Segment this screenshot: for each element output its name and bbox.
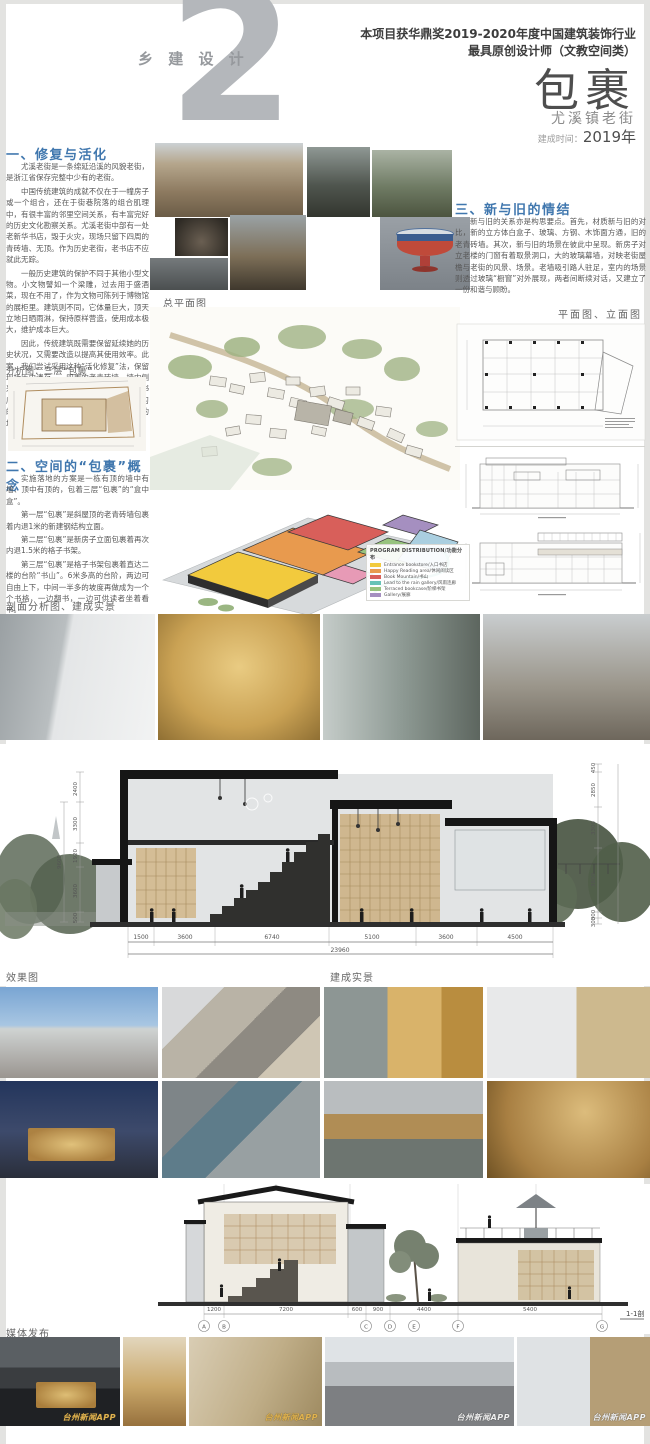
svg-text:500: 500 [73, 912, 79, 923]
chapter-number: 2 [168, 0, 291, 148]
section2-para1: 实施落地的方案是一栋有顶的墙中有墙、顶中有顶的，包着三层“包裹”的“盒中盒”。 [6, 473, 149, 507]
section3-para1: 新与旧的关系亦是构思要点。首先，材质新与旧的对比，新的立方体白盒子、玻璃、方钢、… [455, 216, 646, 296]
svg-text:3300: 3300 [591, 821, 597, 835]
photo-roof-tiles [150, 258, 228, 290]
photo-render-night [0, 1081, 158, 1178]
svg-text:3600: 3600 [591, 873, 597, 887]
svg-text:900: 900 [373, 1307, 384, 1313]
program-legend: PROGRAM DISTRIBUTION/功能分布 Entrance books… [366, 544, 470, 601]
svg-text:600: 600 [352, 1307, 363, 1313]
photo-built-courtyard-wall [324, 987, 483, 1078]
photo-old-alley [483, 614, 650, 740]
svg-text:D: D [388, 1325, 392, 1331]
photo-render-day [0, 987, 158, 1078]
svg-text:6740: 6740 [264, 934, 279, 941]
svg-text:1500: 1500 [133, 934, 148, 941]
photo-built-wood-canopy [324, 1081, 483, 1178]
photo-render-collage [162, 987, 320, 1078]
svg-text:4400: 4400 [417, 1307, 431, 1313]
main-section-drawing: 1500 3600 6740 5100 3600 4500 23960 2400… [0, 744, 650, 986]
photo-stone-archway [175, 218, 228, 256]
floor-plan-drawing [455, 322, 647, 442]
poster-stage: 2 乡 建 设 计 本项目获华鼎奖2019-2020年度中国建筑装饰行业 最具原… [0, 0, 650, 1444]
bowl-base [412, 266, 438, 272]
svg-text:F: F [456, 1325, 459, 1331]
photo-media-shelf-wall [123, 1337, 186, 1426]
watermark: 台州新闻APP [63, 1412, 116, 1423]
legend-chip [370, 569, 381, 573]
legend-title: PROGRAM DISTRIBUTION/功能分布 [370, 547, 466, 561]
section1-para1: 尤溪老街是一条绵延沿溪的风貌老街，是浙江省保存完整中少有的老街。 [6, 161, 149, 184]
photo-old-street-buildings [155, 143, 303, 217]
project-subtitle: 尤溪镇老街 [551, 108, 636, 128]
legend-chip [370, 575, 381, 579]
svg-text:A: A [202, 1325, 206, 1331]
completion-date: 建成时间：2019年 [538, 126, 636, 147]
svg-text:E: E [412, 1325, 416, 1331]
storefront-glow [36, 1382, 96, 1409]
legend-chip [370, 587, 381, 591]
svg-text:C: C [364, 1325, 368, 1331]
legend-chip [370, 563, 381, 567]
photo-glass-interior [323, 614, 480, 740]
svg-text:5400: 5400 [523, 1307, 537, 1313]
svg-text:3600: 3600 [73, 884, 79, 898]
photo-golden-bookshelf-hall [158, 614, 320, 740]
photo-media-book-steps: 台州新闻APP [189, 1337, 322, 1426]
legend-label: Gallery/展廊 [384, 592, 411, 598]
svg-text:3600: 3600 [438, 934, 453, 941]
site-plan-drawing [150, 307, 460, 490]
elevation-drawing-1 [458, 450, 646, 520]
svg-text:450: 450 [591, 762, 597, 773]
secondary-section-drawing: 1200 7200 600 900 4400 5400 A B C D E F … [128, 1184, 650, 1334]
svg-text:4500: 4500 [507, 934, 522, 941]
series-title: 乡 建 设 计 [138, 48, 249, 69]
photo-media-night-exterior: 台州新闻APP [0, 1337, 120, 1426]
svg-text:7200: 7200 [279, 1307, 293, 1313]
section1-para3: 一般历史建筑的保护不同于其他小型文物。小文物譬如一个梁雕，过去用于盛酒菜，现在不… [6, 268, 149, 336]
watermark: 台州新闻APP [593, 1412, 646, 1423]
divider-line [455, 446, 645, 447]
plans-caption: 平面图、立面图 [558, 306, 642, 321]
photo-built-corridor-shelves [487, 987, 650, 1078]
bowl-body [397, 234, 453, 256]
porcelain-bowl-illustration [395, 228, 455, 280]
section1-para2: 中国传统建筑的成就不仅在于一幢房子或一个组合，还在于街巷院落的组合肌理中，有很丰… [6, 186, 149, 266]
section-label: 1-1剖 [626, 1309, 644, 1318]
photo-media-window-reading: 台州新闻APP [517, 1337, 650, 1426]
svg-text:2400: 2400 [73, 782, 79, 796]
photo-stone-gallery [0, 614, 155, 740]
analysis-diagram-caption: 分析图：三层“包裹” [6, 364, 92, 377]
photo-old-balcony [307, 147, 370, 217]
render-caption: 效果图 [6, 969, 39, 984]
svg-text:1920: 1920 [73, 849, 79, 863]
completion-value: 2019年 [583, 128, 636, 146]
section2-para3: 第二层“包裹”是新房子立面包裹着再次内退1.5米的格子书架。 [6, 534, 149, 557]
analysis-diagram [8, 377, 146, 451]
svg-text:B: B [222, 1325, 226, 1331]
legend-row: Gallery/展廊 [370, 592, 466, 598]
window-glow [28, 1128, 115, 1161]
svg-text:300: 300 [591, 916, 597, 927]
svg-text:1200: 1200 [207, 1307, 221, 1313]
section3-body: 新与旧的关系亦是构思要点。首先，材质新与旧的对比，新的立方体白盒子、玻璃、方钢、… [455, 216, 646, 298]
elevation-drawing-2 [460, 523, 646, 597]
left-dimension-total: 9600 [57, 855, 63, 869]
legend-chip [370, 581, 381, 585]
built-caption: 建成实景 [330, 969, 374, 984]
svg-text:5100: 5100 [364, 934, 379, 941]
completion-label: 建成时间： [538, 135, 583, 145]
svg-text:2850: 2850 [591, 783, 597, 797]
award-line-1: 本项目获华鼎奖2019-2020年度中国建筑装饰行业 [360, 26, 636, 43]
watermark: 台州新闻APP [457, 1412, 510, 1423]
photo-aerial-old-town [162, 1081, 320, 1178]
watermark: 台州新闻APP [265, 1412, 318, 1423]
photo-built-book-terraces [487, 1081, 650, 1178]
section2-para2: 第一层“包裹”是斜屋顶的老青砖墙包裹着内退1米的新建钢结构立面。 [6, 509, 149, 532]
photo-overgrown-ruin [372, 150, 452, 217]
photo-media-lecture: 台州新闻APP [325, 1337, 514, 1426]
legend-chip [370, 593, 381, 597]
bowl-stem [420, 256, 430, 266]
bottom-dimension-total: 23960 [330, 947, 349, 954]
svg-text:3600: 3600 [177, 934, 192, 941]
svg-text:G: G [600, 1325, 604, 1331]
section-row-caption: 剖面分析图、建成实景 [6, 598, 116, 613]
svg-text:3300: 3300 [73, 817, 79, 831]
photo-courtyard [230, 215, 306, 290]
